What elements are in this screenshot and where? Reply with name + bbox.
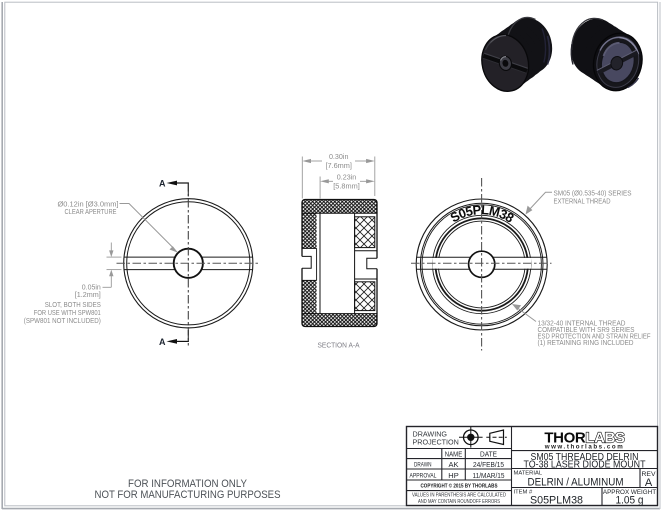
svg-text:A: A [645,477,653,489]
svg-text:www.thorlabs.com: www.thorlabs.com [544,443,625,450]
svg-text:APPROVAL: APPROVAL [410,473,437,480]
svg-text:AND MAY CONTAIN ROUNDOFF ERROR: AND MAY CONTAIN ROUNDOFF ERRORS [418,499,500,505]
svg-text:NOT FOR MANUFACTURING PURPOSES: NOT FOR MANUFACTURING PURPOSES [95,489,281,501]
svg-text:EXTERNAL THREAD: EXTERNAL THREAD [554,196,611,205]
svg-text:CLEAR APERTURE: CLEAR APERTURE [65,207,117,216]
svg-text:(1) RETAINING RING INCLUDED: (1) RETAINING RING INCLUDED [538,338,634,347]
svg-text:COPYRIGHT © 2015 BY THORLABS: COPYRIGHT © 2015 BY THORLABS [421,483,498,490]
svg-text:0.23in: 0.23in [337,173,357,182]
svg-text:DATE: DATE [480,450,497,459]
svg-text:TO-38 LASER DIODE MOUNT: TO-38 LASER DIODE MOUNT [524,460,646,471]
svg-text:1.05 g: 1.05 g [616,495,644,507]
svg-text:DRAWN: DRAWN [414,462,432,469]
svg-text:VALUES IN PARENTHESIS ARE CALC: VALUES IN PARENTHESIS ARE CALCULATED [412,493,506,499]
svg-text:AK: AK [448,460,458,469]
svg-text:[5.8mm]: [5.8mm] [333,181,360,190]
svg-text:DELRIN / ALUMINUM: DELRIN / ALUMINUM [528,476,624,488]
svg-text:24/FEB/15: 24/FEB/15 [473,460,504,469]
svg-text:NAME: NAME [445,450,463,459]
svg-text:S05PLM38: S05PLM38 [530,494,583,506]
svg-text:SECTION A-A: SECTION A-A [318,341,360,350]
svg-text:HP: HP [448,471,458,480]
svg-text:11/MAR/15: 11/MAR/15 [473,471,505,480]
svg-text:0.30in: 0.30in [329,152,349,161]
svg-text:[7.6mm]: [7.6mm] [325,161,352,170]
svg-text:A: A [159,179,166,189]
svg-text:PROJECTION: PROJECTION [413,438,459,447]
svg-text:A: A [159,337,166,347]
svg-text:[1.2mm]: [1.2mm] [75,290,101,299]
svg-text:(SPW801 NOT INCLUDED): (SPW801 NOT INCLUDED) [24,316,101,325]
